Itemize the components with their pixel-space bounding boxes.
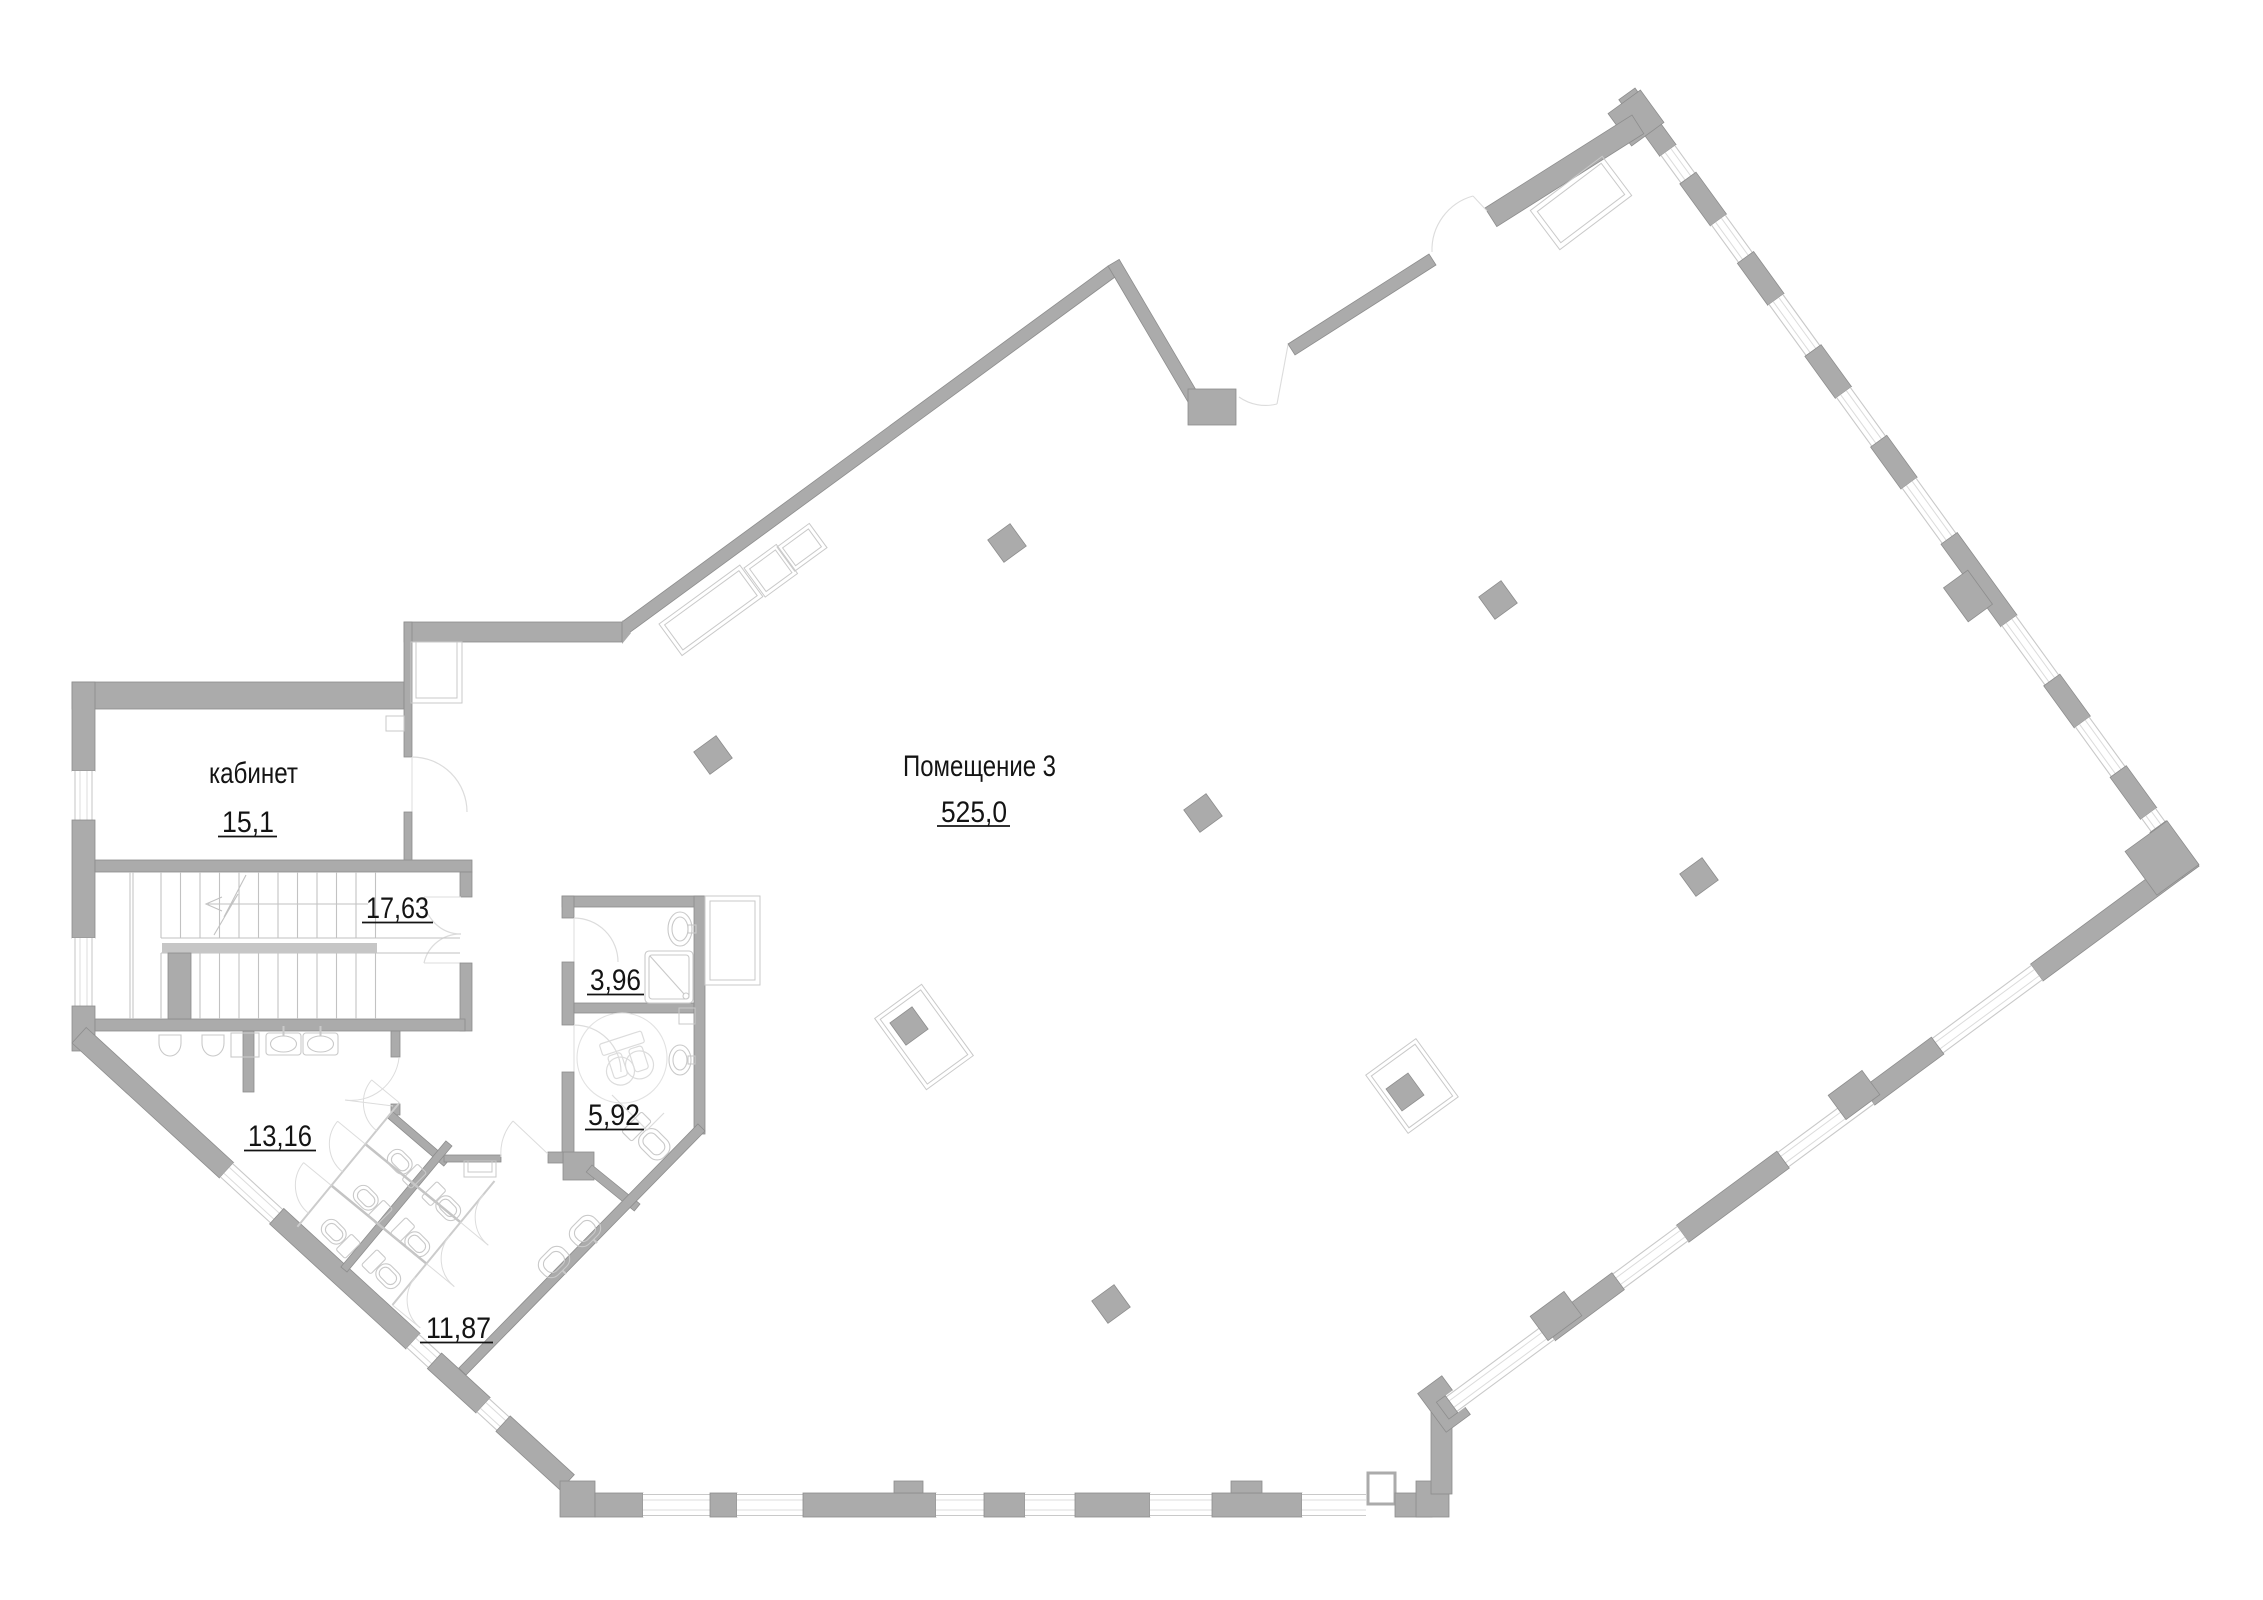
svg-text:15,1: 15,1 [222,806,274,839]
svg-text:3,96: 3,96 [590,964,641,997]
svg-text:Помещение 3: Помещение 3 [903,750,1056,783]
svg-text:17,63: 17,63 [366,892,429,925]
svg-text:11,87: 11,87 [426,1312,491,1345]
svg-text:13,16: 13,16 [248,1120,312,1153]
svg-text:525,0: 525,0 [941,796,1007,829]
svg-text:кабинет: кабинет [209,757,298,790]
svg-text:5,92: 5,92 [588,1099,640,1132]
